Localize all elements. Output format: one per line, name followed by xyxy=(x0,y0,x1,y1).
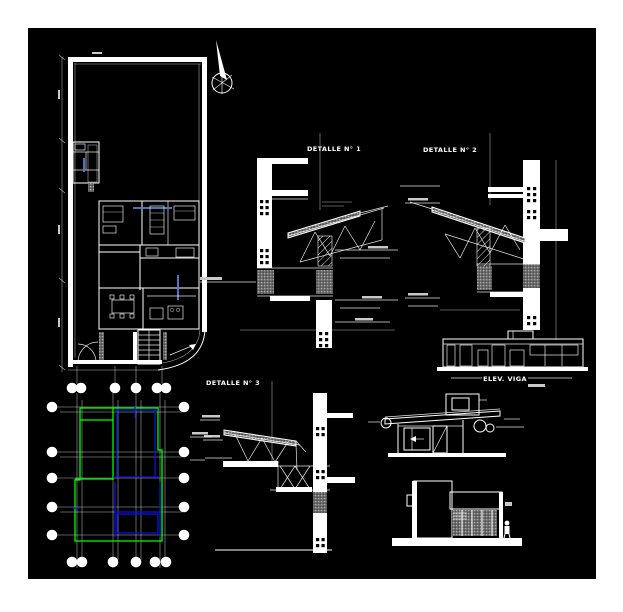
detail-3-title: DETALLE N° 3 xyxy=(206,379,260,387)
sheet-page: DETALLE N° 1 xyxy=(0,0,623,612)
cad-sheet: DETALLE N° 1 xyxy=(0,0,623,612)
glazing-hatch xyxy=(452,510,497,536)
beam-elevation-title: ELEV. VIGA xyxy=(483,375,527,383)
detail-2-title: DETALLE N° 2 xyxy=(423,146,477,154)
detail-1-title: DETALLE N° 1 xyxy=(307,145,361,153)
